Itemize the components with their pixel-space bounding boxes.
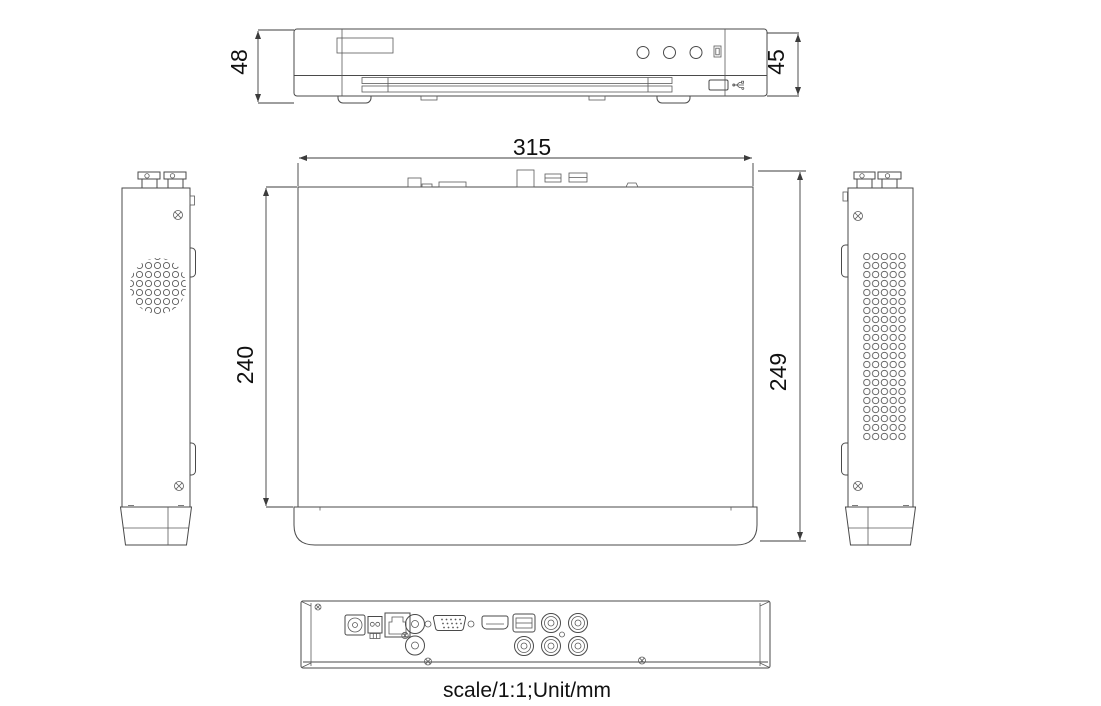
bnc-connector [569,614,588,633]
power-terminal [368,617,382,639]
vga-port [425,615,474,630]
rect-vent [863,253,907,441]
rca-connector [406,636,425,655]
ethernet-port [385,613,410,637]
dim-240-label: 240 [232,346,258,384]
dc-power-jack [345,615,365,635]
rear-chassis [301,601,770,668]
mounting-rail [842,245,848,475]
screw-icon [639,657,646,664]
front-feet [338,96,690,103]
bnc-connector [542,614,561,633]
rear-usb-port [513,614,535,632]
front-bezel-side [121,506,192,546]
bnc-connector [515,637,534,656]
screw-icon [315,604,321,610]
top-chassis [298,187,753,507]
ir-window-icon [714,46,721,57]
led-icon [664,47,676,59]
screw-icon [175,482,184,491]
left-side-view [121,172,196,545]
dimension-front-panel-height: 45 [763,33,799,96]
led-icon [637,47,649,59]
top-view [294,170,757,545]
bnc-connector [854,172,875,188]
bnc-connector [138,172,160,188]
screw-icon [560,632,565,637]
scale-unit-note: scale/1:1;Unit/mm [443,679,611,702]
screw-icon [854,212,863,221]
bnc-connector [542,637,561,656]
screw-icon [854,482,863,491]
round-vent [130,258,186,314]
rca-connector [406,615,425,634]
side-chassis [122,188,190,507]
front-label-plate [337,38,393,53]
right-side-view [842,172,916,545]
dim-45-label: 45 [763,49,789,75]
bnc-connector [164,172,186,188]
rear-connector-profiles [408,170,638,187]
dim-249-label: 249 [765,353,791,391]
front-vent-slots [362,78,672,93]
bnc-connector [569,637,588,656]
screw-icon [174,211,183,220]
dim-48-label: 48 [226,49,252,75]
dimension-side-depth: 249 [758,171,806,541]
dimension-front-height-total: 48 [226,30,294,103]
screw-icon [402,632,408,638]
dim-315-label: 315 [513,134,551,160]
rear-view [301,601,770,668]
front-led-indicators [637,47,702,59]
hdmi-port [482,616,508,629]
dimension-top-depth: 240 [232,187,297,507]
top-front-panel [294,507,757,545]
device-dimension-drawing: 48 45 315 [0,0,1101,706]
led-icon [690,47,702,59]
front-view [294,29,767,103]
front-bezel-side [846,506,916,546]
usb-icon [733,81,744,89]
bnc-connector [878,172,901,188]
dimension-top-width: 315 [298,134,753,186]
